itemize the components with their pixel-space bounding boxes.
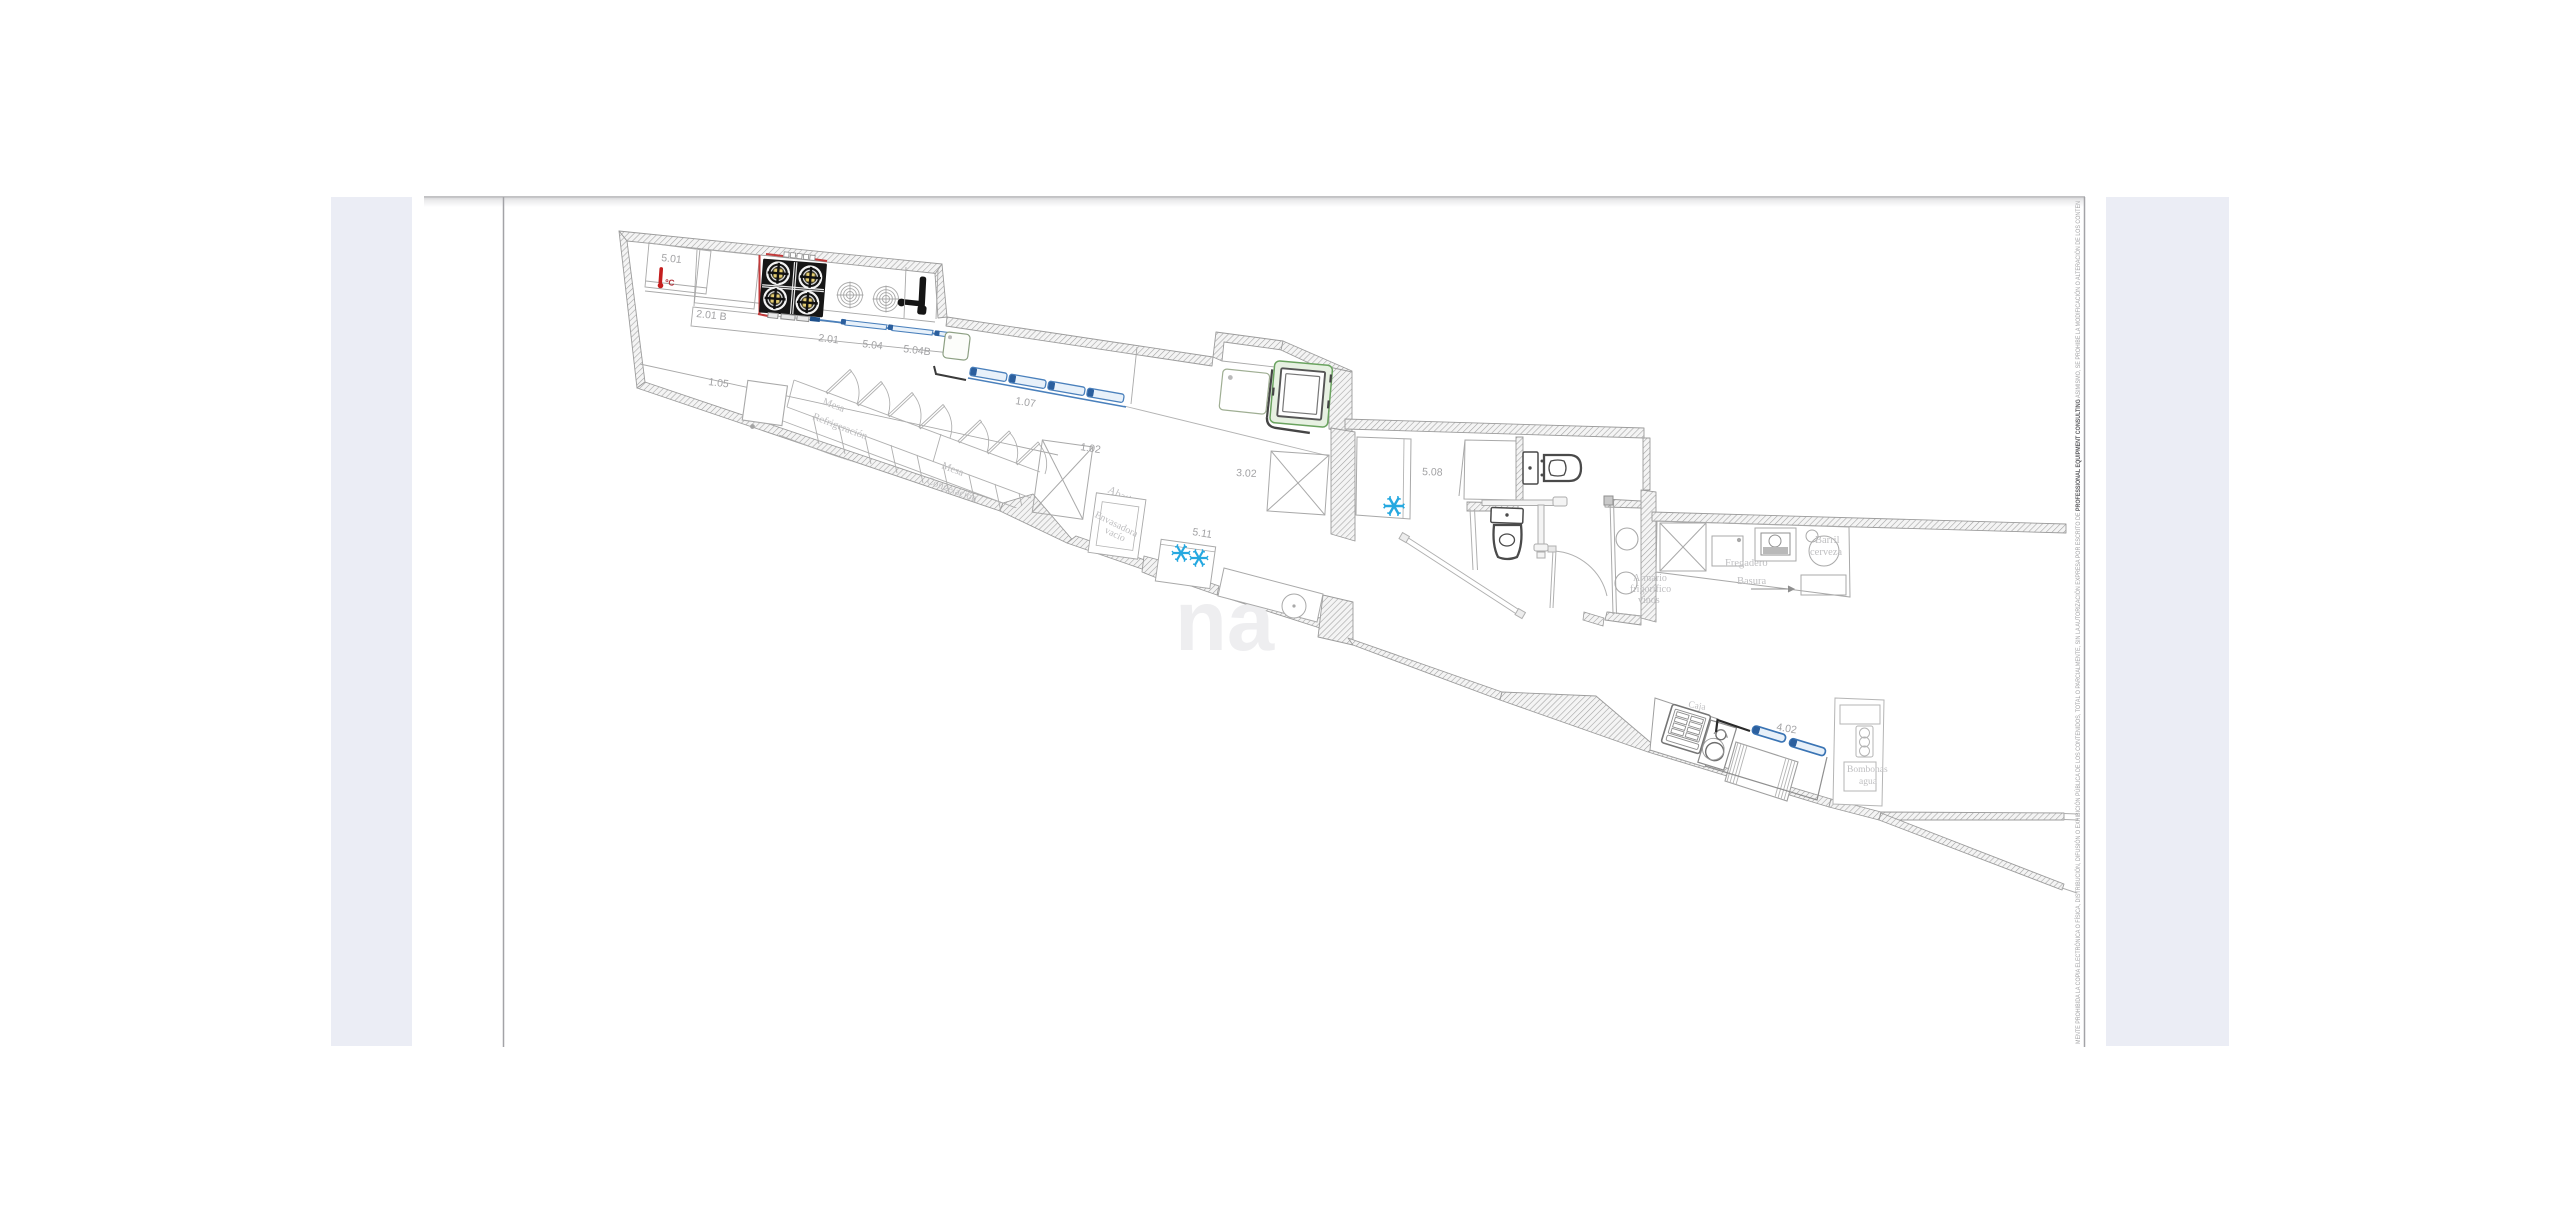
- svg-text:vinos: vinos: [1638, 595, 1660, 606]
- svg-text:cerveza: cerveza: [1810, 547, 1842, 558]
- svg-text:Fregadero: Fregadero: [1725, 558, 1768, 569]
- svg-text:Barril: Barril: [1815, 535, 1840, 546]
- svg-text:2.01: 2.01: [818, 332, 840, 346]
- svg-text:Basura: Basura: [1737, 576, 1766, 587]
- svg-text:5.08: 5.08: [1422, 466, 1443, 479]
- svg-text:Bombonas: Bombonas: [1847, 765, 1888, 775]
- svg-text:3.02: 3.02: [1236, 467, 1257, 480]
- svg-text:ºC: ºC: [665, 277, 675, 288]
- svg-text:1.05: 1.05: [708, 376, 730, 390]
- svg-text:frigorífico: frigorífico: [1630, 584, 1671, 595]
- svg-text:Armario: Armario: [1633, 573, 1667, 584]
- svg-text:agua: agua: [1859, 777, 1878, 787]
- svg-text:5.01: 5.01: [661, 252, 683, 266]
- svg-text:5.04: 5.04: [862, 338, 884, 352]
- svg-text:MENTE PROHIBIDA LA COPIA ELECT: MENTE PROHIBIDA LA COPIA ELECTRÓNICA O F…: [2075, 201, 2082, 1044]
